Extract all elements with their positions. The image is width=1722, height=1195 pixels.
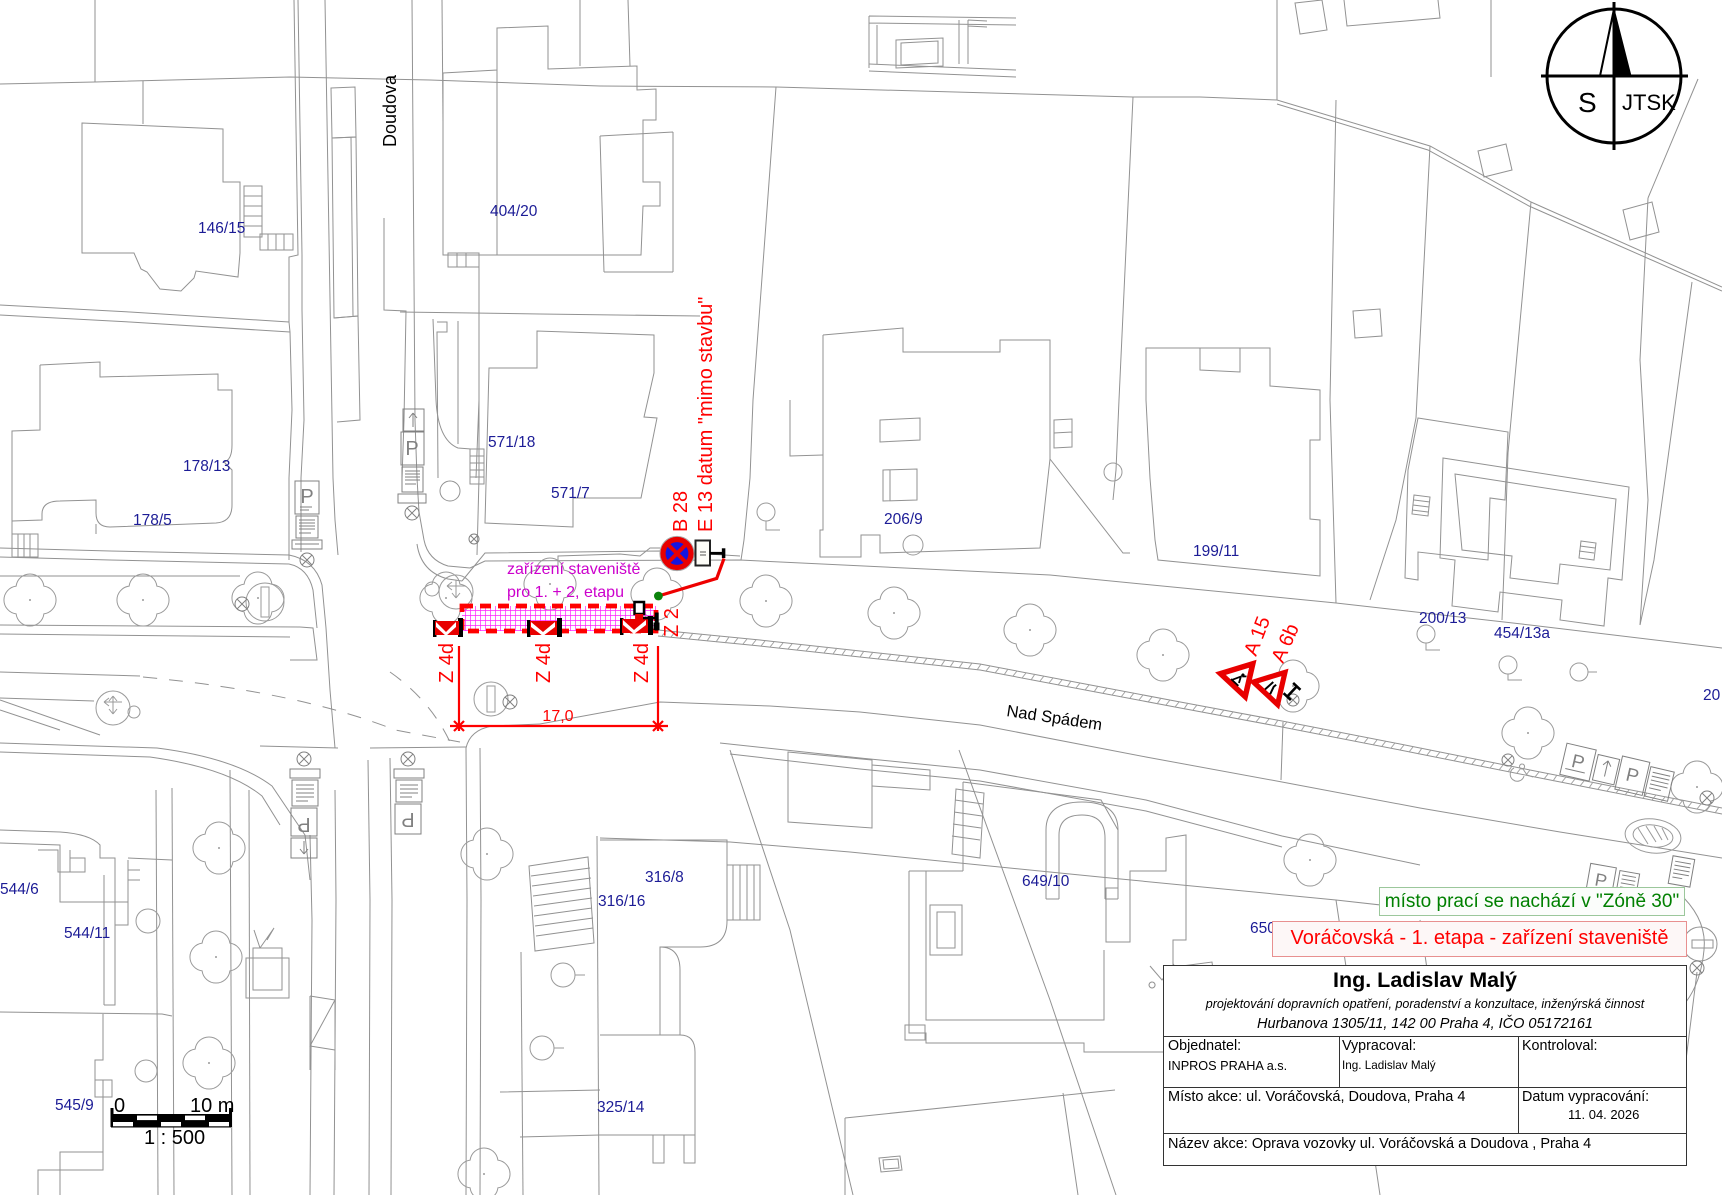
svg-text:P: P	[1569, 751, 1586, 774]
svg-text:649/10: 649/10	[1022, 873, 1070, 890]
svg-text:178/13: 178/13	[183, 458, 230, 475]
svg-text:325/14: 325/14	[597, 1099, 645, 1116]
svg-text:178/5: 178/5	[133, 512, 172, 529]
svg-text:545/9: 545/9	[55, 1097, 94, 1114]
svg-text:146/15: 146/15	[198, 220, 245, 237]
svg-text:P: P	[297, 813, 310, 835]
svg-text:Doudova: Doudova	[380, 74, 400, 147]
svg-text:10 m: 10 m	[190, 1095, 234, 1117]
svg-text:P: P	[405, 438, 418, 460]
svg-text:Z 4d: Z 4d	[436, 643, 458, 683]
svg-text:404/20: 404/20	[490, 203, 538, 220]
svg-text:P: P	[300, 486, 313, 508]
svg-text:20: 20	[1703, 687, 1721, 704]
svg-text:E 13 datum "mimo stavbu": E 13 datum "mimo stavbu"	[695, 297, 717, 532]
svg-text:454/13a: 454/13a	[1494, 625, 1550, 642]
svg-text:17,0: 17,0	[542, 708, 573, 725]
svg-text:0: 0	[114, 1095, 125, 1117]
svg-text:P: P	[1624, 765, 1641, 788]
svg-text:B 28: B 28	[670, 491, 692, 532]
svg-text:A 6b: A 6b	[1267, 621, 1303, 667]
svg-text:Z 4d: Z 4d	[631, 643, 653, 683]
svg-text:zařízení staveniště: zařízení staveniště	[507, 561, 641, 578]
svg-text:P: P	[401, 808, 414, 830]
svg-text:571/7: 571/7	[551, 485, 590, 502]
svg-text:S: S	[1578, 87, 1597, 118]
svg-text:Nad Spádem: Nad Spádem	[1005, 702, 1103, 734]
svg-text:200/13: 200/13	[1419, 610, 1466, 627]
svg-text:544/11: 544/11	[64, 925, 110, 942]
svg-text:316/16: 316/16	[598, 893, 645, 910]
svg-text:544/6: 544/6	[0, 881, 39, 898]
svg-text:206/9: 206/9	[884, 511, 923, 528]
svg-text:Z 2: Z 2	[661, 608, 683, 637]
svg-text:571/18: 571/18	[488, 434, 535, 451]
svg-text:199/11: 199/11	[1193, 543, 1239, 560]
svg-text:316/8: 316/8	[645, 869, 684, 886]
svg-text:1 : 500: 1 : 500	[144, 1127, 205, 1149]
svg-text:pro 1. + 2, etapu: pro 1. + 2, etapu	[507, 584, 624, 601]
svg-text:Z 4d: Z 4d	[533, 643, 555, 683]
svg-text:JTSK: JTSK	[1622, 90, 1676, 115]
